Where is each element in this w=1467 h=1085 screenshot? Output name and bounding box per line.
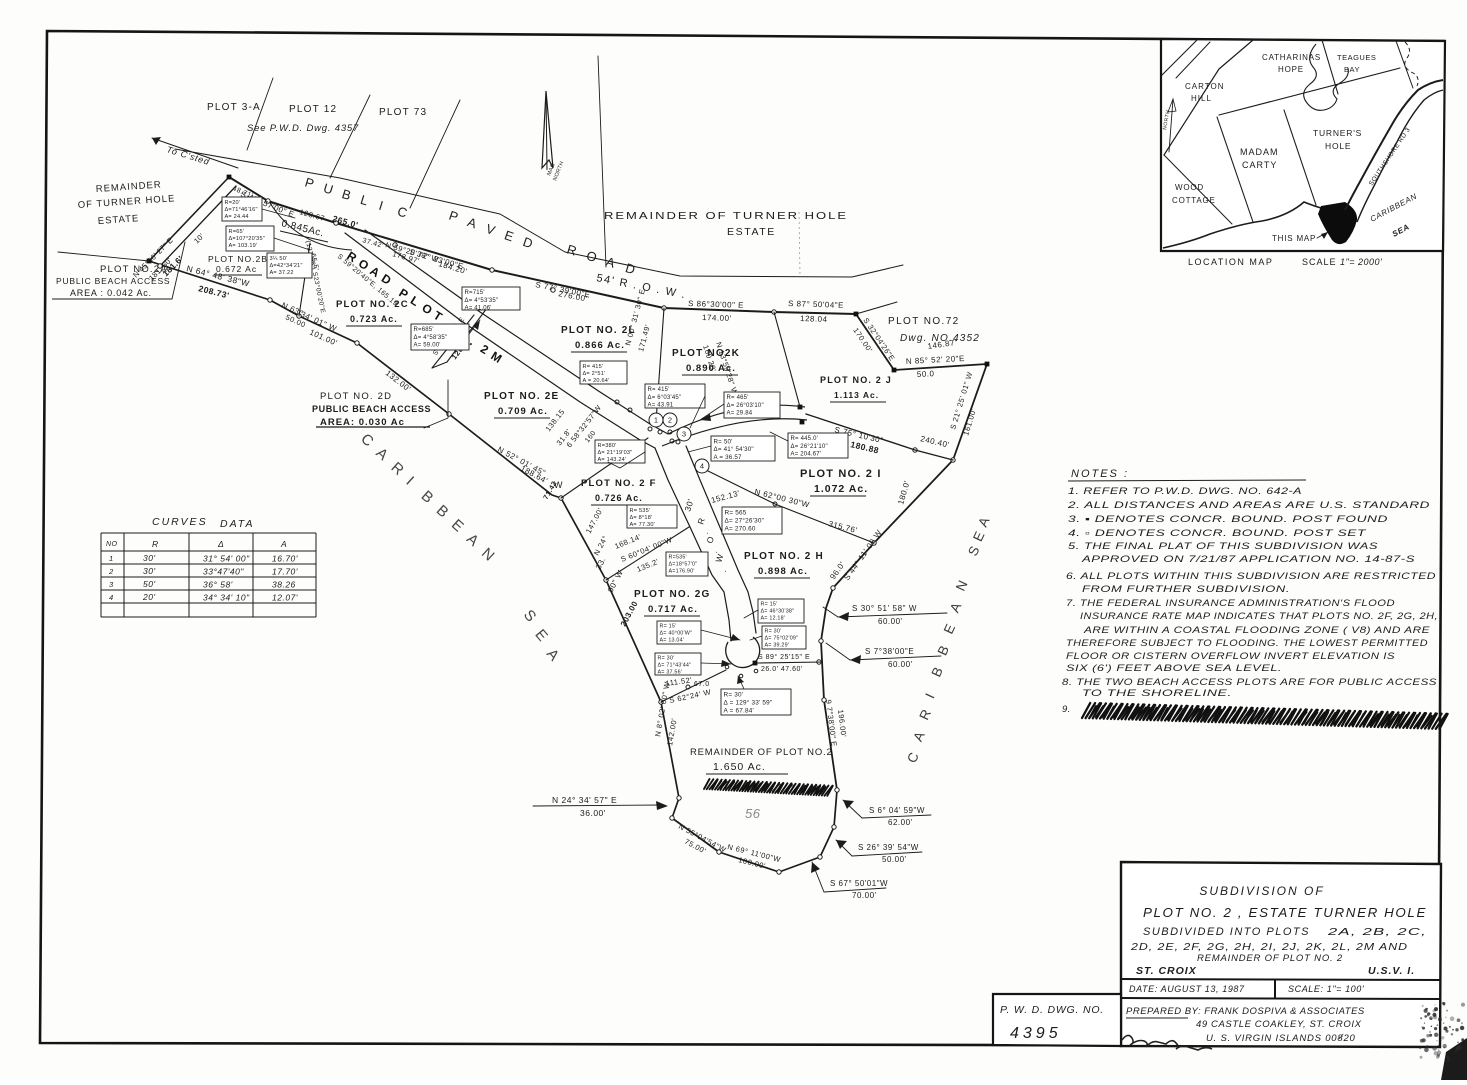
svg-text:SUBDIVISION OF: SUBDIVISION OF <box>1199 884 1324 898</box>
svg-text:0.726 Ac.: 0.726 Ac. <box>595 493 643 503</box>
svg-text:U. S. VIRGIN ISLANDS 00820: U. S. VIRGIN ISLANDS 00820 <box>1206 1033 1356 1044</box>
svg-text:174.00': 174.00' <box>702 313 732 323</box>
svg-text:NOTES :: NOTES : <box>1071 468 1129 480</box>
svg-text:A= 204.67': A= 204.67' <box>791 451 822 457</box>
svg-text:REMAINDER OF PLOT NO. 2: REMAINDER OF PLOT NO. 2 <box>1197 953 1343 964</box>
svg-text:2: 2 <box>668 416 672 425</box>
svg-text:1. REFER TO P.W.D. DWG. NO. 64: 1. REFER TO P.W.D. DWG. NO. 642-A <box>1068 486 1302 497</box>
svg-text:A= 29.84: A= 29.84 <box>727 410 753 416</box>
svg-text:PLOT NO. 2 H: PLOT NO. 2 H <box>744 551 824 562</box>
svg-text:A= 37.56': A= 37.56' <box>658 670 683 676</box>
svg-text:34° 34' 10": 34° 34' 10" <box>203 593 250 603</box>
svg-text:R= 50': R= 50' <box>714 438 733 445</box>
svg-text:12.07': 12.07' <box>272 593 298 603</box>
svg-text:3: 3 <box>109 580 114 589</box>
svg-text:TURNER'S: TURNER'S <box>1313 128 1362 138</box>
svg-text:6. ALL PLOTS WITHIN THIS SUBDI: 6. ALL PLOTS WITHIN THIS SUBDIVISION ARE… <box>1066 571 1436 581</box>
svg-text:BAY: BAY <box>1344 65 1360 74</box>
svg-text:Δ= 75°02'09": Δ= 75°02'09" <box>765 636 799 642</box>
svg-text:PLOT 73: PLOT 73 <box>379 107 427 118</box>
svg-text:S 89° 25'15" E: S 89° 25'15" E <box>758 653 810 661</box>
svg-text:R=715': R=715' <box>465 290 485 296</box>
svg-text:N 24° 34' 57" E: N 24° 34' 57" E <box>552 795 617 805</box>
svg-text:A=176.90': A=176.90' <box>669 569 695 575</box>
svg-text:60.00': 60.00' <box>878 617 903 626</box>
svg-text:3¼ 50': 3¼ 50' <box>270 256 288 262</box>
svg-text:Δ= 40°00'W": Δ= 40°00'W" <box>660 631 693 637</box>
svg-text:PLOT NO. 2D: PLOT NO. 2D <box>320 391 392 402</box>
svg-text:R= 30': R= 30' <box>724 692 744 699</box>
svg-text:1.072 Ac.: 1.072 Ac. <box>814 483 868 495</box>
svg-text:S 6° 04' 59"W: S 6° 04' 59"W <box>869 806 925 815</box>
svg-text:PLOT NO. 2 J: PLOT NO. 2 J <box>820 375 892 385</box>
svg-text:56: 56 <box>745 806 761 821</box>
svg-text:COTTAGE: COTTAGE <box>1172 196 1216 205</box>
svg-text:✓: ✓ <box>1337 1032 1346 1043</box>
svg-text:2. ALL DISTANCES AND AREAS ARE: 2. ALL DISTANCES AND AREAS ARE U.S. STAN… <box>1067 500 1430 511</box>
svg-text:Δ= 41° 54'30": Δ= 41° 54'30" <box>714 446 754 453</box>
svg-text:4395: 4395 <box>1010 1025 1062 1042</box>
svg-text:Δ= 6°03'45": Δ= 6°03'45" <box>648 395 682 401</box>
svg-text:2: 2 <box>108 567 114 576</box>
svg-text:P. W. D. DWG. NO.: P. W. D. DWG. NO. <box>1000 1004 1104 1016</box>
svg-text:R= 15': R= 15' <box>660 624 677 630</box>
svg-text:3. ▪ DENOTES CONCR. BOUND. PO: 3. ▪ DENOTES CONCR. BOUND. POST FOUND <box>1068 514 1388 525</box>
svg-text:TO THE SHORELINE.: TO THE SHORELINE. <box>1082 688 1232 698</box>
svg-text:62.00': 62.00' <box>888 818 913 827</box>
svg-text:1.113 Ac.: 1.113 Ac. <box>834 390 879 400</box>
svg-text:MADAM: MADAM <box>1240 147 1279 157</box>
svg-text:CARTY: CARTY <box>1242 160 1277 170</box>
svg-text:A= 270.60: A= 270.60 <box>725 526 756 533</box>
svg-text:R=65': R=65' <box>229 229 245 235</box>
svg-text:Δ= 4°58'35": Δ= 4°58'35" <box>414 335 448 341</box>
svg-text:U.S.V. I.: U.S.V. I. <box>1368 965 1415 977</box>
svg-text:PLOT NO. 2 , ESTATE TURNER: PLOT NO. 2 , ESTATE TURNER HOLE <box>1143 906 1427 920</box>
svg-text:A= 24.44: A= 24.44 <box>225 214 249 220</box>
svg-text:CURVES: CURVES <box>152 516 208 528</box>
svg-text:ST. CROIX: ST. CROIX <box>1136 965 1197 977</box>
svg-text:A = 20.64': A = 20.64' <box>583 378 610 384</box>
svg-text:Δ=71°46'16": Δ=71°46'16" <box>225 207 258 213</box>
svg-text:50.00': 50.00' <box>882 855 907 864</box>
svg-text:4: 4 <box>700 462 704 471</box>
svg-text:A= 39.29': A= 39.29' <box>765 643 790 649</box>
svg-text:R=685': R=685' <box>414 327 434 333</box>
svg-text:17.70': 17.70' <box>272 567 298 577</box>
svg-text:A= 41.06': A= 41.06' <box>465 305 492 311</box>
svg-text:A= 12.18': A= 12.18' <box>761 616 786 622</box>
svg-text:Δ=107°20'35": Δ=107°20'35" <box>229 236 265 242</box>
svg-text:Δ= 26°03'10": Δ= 26°03'10" <box>727 403 764 409</box>
svg-text:49 CASTLE COAKLEY, ST. CROI: 49 CASTLE COAKLEY, ST. CROIX <box>1196 1019 1362 1030</box>
svg-text:26.0' 47.60': 26.0' 47.60' <box>761 666 803 673</box>
svg-text:0.717 Ac.: 0.717 Ac. <box>648 604 698 615</box>
svg-text:LOCATION MAP: LOCATION MAP <box>1188 257 1273 267</box>
svg-text:PREPARED BY: FRANK DOSPIVA: PREPARED BY: FRANK DOSPIVA & ASSOCIATES <box>1126 1006 1365 1017</box>
svg-text:A = 36.57: A = 36.57 <box>714 454 742 461</box>
svg-text:R= 445.0': R= 445.0' <box>791 436 818 442</box>
svg-text:8. THE TWO BEACH ACCESS PLOTS: 8. THE TWO BEACH ACCESS PLOTS ARE FOR PU… <box>1062 677 1437 687</box>
svg-text:CATHARINAS: CATHARINAS <box>1262 53 1321 62</box>
svg-text:R=20': R=20' <box>225 200 241 206</box>
svg-text:Δ= 21°19'03": Δ= 21°19'03" <box>598 450 633 456</box>
svg-text:70.00': 70.00' <box>852 891 877 900</box>
svg-text:SCALE: 1"= 100': SCALE: 1"= 100' <box>1288 984 1364 994</box>
svg-text:2A, 2B, 2C,: 2A, 2B, 2C, <box>1326 927 1427 938</box>
svg-text:ARE WITHIN A COASTAL FLOODING: ARE WITHIN A COASTAL FLOODING ZONE ( V8)… <box>1083 625 1431 635</box>
svg-text:A= 77.30': A= 77.30' <box>630 522 655 528</box>
svg-text:R= 465': R= 465' <box>727 395 749 401</box>
svg-text:33°47'40": 33°47'40" <box>203 567 244 577</box>
svg-text:HOLE: HOLE <box>1325 141 1351 151</box>
svg-text:THEREFORE SUBJECT TO FLOODING.: THEREFORE SUBJECT TO FLOODING. THE LOWES… <box>1066 638 1428 648</box>
svg-text:0.723 Ac.: 0.723 Ac. <box>350 314 398 324</box>
svg-text:PLOT 3-A: PLOT 3-A <box>207 102 261 113</box>
svg-text:R= 30': R= 30' <box>658 656 675 662</box>
svg-text:SUBDIVIDED INTO PLOTS: SUBDIVIDED INTO PLOTS <box>1143 926 1310 938</box>
svg-text:PLOT 12: PLOT 12 <box>289 104 337 115</box>
svg-text:R= 415': R= 415' <box>583 364 604 370</box>
svg-text:3: 3 <box>682 430 686 439</box>
svg-text:Δ= 4°53'35": Δ= 4°53'35" <box>465 298 499 304</box>
svg-text:0.709 Ac.: 0.709 Ac. <box>498 406 548 417</box>
svg-text:1.650 Ac.: 1.650 Ac. <box>713 761 766 773</box>
svg-text:ESTATE: ESTATE <box>727 226 776 238</box>
svg-text:30': 30' <box>143 566 156 576</box>
svg-text:S 30° 51' 58" W: S 30° 51' 58" W <box>852 604 917 613</box>
svg-text:S 67° 50'01"W: S 67° 50'01"W <box>830 879 888 888</box>
svg-text:1: 1 <box>109 554 114 563</box>
svg-text:50': 50' <box>143 579 156 589</box>
svg-text:R= 565: R= 565 <box>725 510 747 517</box>
svg-text:PLOT NO. 2E: PLOT NO. 2E <box>484 391 559 402</box>
svg-text:50.0: 50.0 <box>917 369 935 379</box>
svg-text:WOOD: WOOD <box>1175 183 1204 192</box>
svg-text:PLOT NO. 2G: PLOT NO. 2G <box>634 589 711 600</box>
svg-text:Δ= 2°51': Δ= 2°51' <box>583 371 606 377</box>
svg-text:HILL: HILL <box>1191 94 1212 103</box>
svg-text:A: A <box>280 539 287 549</box>
svg-text:CARTON: CARTON <box>1185 82 1225 91</box>
svg-text:9.: 9. <box>1062 704 1071 715</box>
svg-text:128.04: 128.04 <box>800 314 828 324</box>
svg-text:AREA : 0.042 Ac.: AREA : 0.042 Ac. <box>70 288 152 298</box>
svg-text:36.00': 36.00' <box>580 808 606 818</box>
svg-text:R= 15': R= 15' <box>761 602 778 608</box>
svg-text:S 7°38'00"E: S 7°38'00"E <box>865 647 914 656</box>
svg-text:R= 415': R= 415' <box>648 387 670 393</box>
svg-text:R: R <box>152 539 159 549</box>
svg-text:DATA: DATA <box>220 518 254 530</box>
svg-text:0.898 Ac.: 0.898 Ac. <box>758 566 808 577</box>
svg-text:FLOOR OR CISTERN OVERFLOW INVE: FLOOR OR CISTERN OVERFLOW INVERT ELEVATI… <box>1066 651 1396 661</box>
svg-text:Δ=42°34'21": Δ=42°34'21" <box>270 263 303 269</box>
svg-text:PLOT NO. 2L: PLOT NO. 2L <box>561 325 636 336</box>
svg-text:1"= 2000': 1"= 2000' <box>1340 257 1382 267</box>
svg-text:PUBLIC BEACH ACCESS: PUBLIC BEACH ACCESS <box>312 404 431 414</box>
svg-text:PLOT NO.72: PLOT NO.72 <box>888 316 960 327</box>
svg-text:R= 30': R= 30' <box>765 629 782 635</box>
svg-text:A= 43.91: A= 43.91 <box>648 402 674 408</box>
svg-text:S 26° 39' 54"W: S 26° 39' 54"W <box>858 843 919 852</box>
svg-text:See P.W.D. Dwg. 4357: See P.W.D. Dwg. 4357 <box>247 123 359 134</box>
svg-text:36° 58': 36° 58' <box>203 580 233 590</box>
svg-text:Δ=18°57'0": Δ=18°57'0" <box>669 562 698 568</box>
svg-text:A= 59.00': A= 59.00' <box>414 342 441 348</box>
svg-text:A= 37.22: A= 37.22 <box>270 270 294 276</box>
svg-text:PLOT NO. 2 F: PLOT NO. 2 F <box>581 478 657 489</box>
svg-text:Δ = 129° 33' 59": Δ = 129° 33' 59" <box>724 699 773 707</box>
svg-text:60.00': 60.00' <box>888 660 913 669</box>
svg-text:R=380': R=380' <box>598 443 617 449</box>
svg-text:7. THE FEDERAL INSURANCE ADMIN: 7. THE FEDERAL INSURANCE ADMINISTRATION'… <box>1066 598 1395 608</box>
svg-text:INSURANCE RATE MAP INDICATES T: INSURANCE RATE MAP INDICATES THAT PLOTS … <box>1080 611 1438 621</box>
svg-text:DATE: AUGUST 13, 1987: DATE: AUGUST 13, 1987 <box>1129 984 1245 994</box>
svg-text:Δ= 27°26'30": Δ= 27°26'30" <box>725 517 765 525</box>
svg-text:0.866 Ac.: 0.866 Ac. <box>575 340 625 351</box>
svg-text:HOPE: HOPE <box>1278 65 1304 74</box>
svg-text:20': 20' <box>142 592 156 602</box>
svg-text:A= 103.19': A= 103.19' <box>229 243 258 249</box>
svg-text:PLOT NO.2B: PLOT NO.2B <box>208 254 268 264</box>
svg-text:SCALE: SCALE <box>1302 257 1337 267</box>
svg-text:A = 67.84': A = 67.84' <box>724 708 754 715</box>
svg-text:R=535': R=535' <box>669 555 687 561</box>
svg-text:Δ: Δ <box>217 539 224 549</box>
svg-text:REMAINDER OF PLOT NO.2: REMAINDER OF PLOT NO.2 <box>690 747 833 758</box>
svg-text:30': 30' <box>143 553 156 563</box>
svg-text:APPROVED ON 7/21/87 APPLICATI: APPROVED ON 7/21/87 APPLICATION NO. 14-8… <box>1081 554 1416 564</box>
svg-text:Δ= 8°18': Δ= 8°18' <box>630 515 653 521</box>
svg-text:REMAINDER OF TURNER HOLE: REMAINDER OF TURNER HOLE <box>604 210 848 222</box>
svg-text:16.70': 16.70' <box>272 554 298 564</box>
svg-text:5. THE FINAL PLAT OF THIS SUBD: 5. THE FINAL PLAT OF THIS SUBDIVISION WA… <box>1068 541 1379 551</box>
svg-text:TEAGUES: TEAGUES <box>1337 53 1376 62</box>
svg-text:AREA: 0.030 Ac: AREA: 0.030 Ac <box>320 417 405 428</box>
svg-text:Δ= 26°21'10": Δ= 26°21'10" <box>791 444 828 450</box>
svg-text:1: 1 <box>654 416 658 425</box>
svg-text:SIX (6') FEET ABOVE SEA LEVEL.: SIX (6') FEET ABOVE SEA LEVEL. <box>1066 662 1282 673</box>
svg-text:FROM FURTHER SUBDIVISION.: FROM FURTHER SUBDIVISION. <box>1082 584 1290 594</box>
svg-text:A= 13.04': A= 13.04' <box>660 638 685 644</box>
svg-text:4: 4 <box>109 593 114 602</box>
svg-text:Δ= 71°43'44": Δ= 71°43'44" <box>658 663 692 669</box>
svg-text:2D, 2E, 2F, 2G, 2H, 2I, 2J, 2: 2D, 2E, 2F, 2G, 2H, 2I, 2J, 2K, 2L, 2M A… <box>1130 942 1408 953</box>
svg-text:A= 143.24': A= 143.24' <box>598 457 627 463</box>
svg-text:38.26: 38.26 <box>272 580 296 590</box>
svg-text:NO: NO <box>106 541 118 548</box>
svg-text:THIS MAP: THIS MAP <box>1272 234 1316 243</box>
svg-text:PLOT NO. 2 I: PLOT NO. 2 I <box>800 468 882 480</box>
svg-text:R= 535': R= 535' <box>630 508 651 514</box>
svg-text:31° 54' 00": 31° 54' 00" <box>203 554 250 564</box>
svg-text:4. ▫ DENOTES CONCR. BOUND. PO: 4. ▫ DENOTES CONCR. BOUND. POST SET <box>1068 528 1367 539</box>
svg-text:Δ= 46°30'38": Δ= 46°30'38" <box>761 609 795 615</box>
